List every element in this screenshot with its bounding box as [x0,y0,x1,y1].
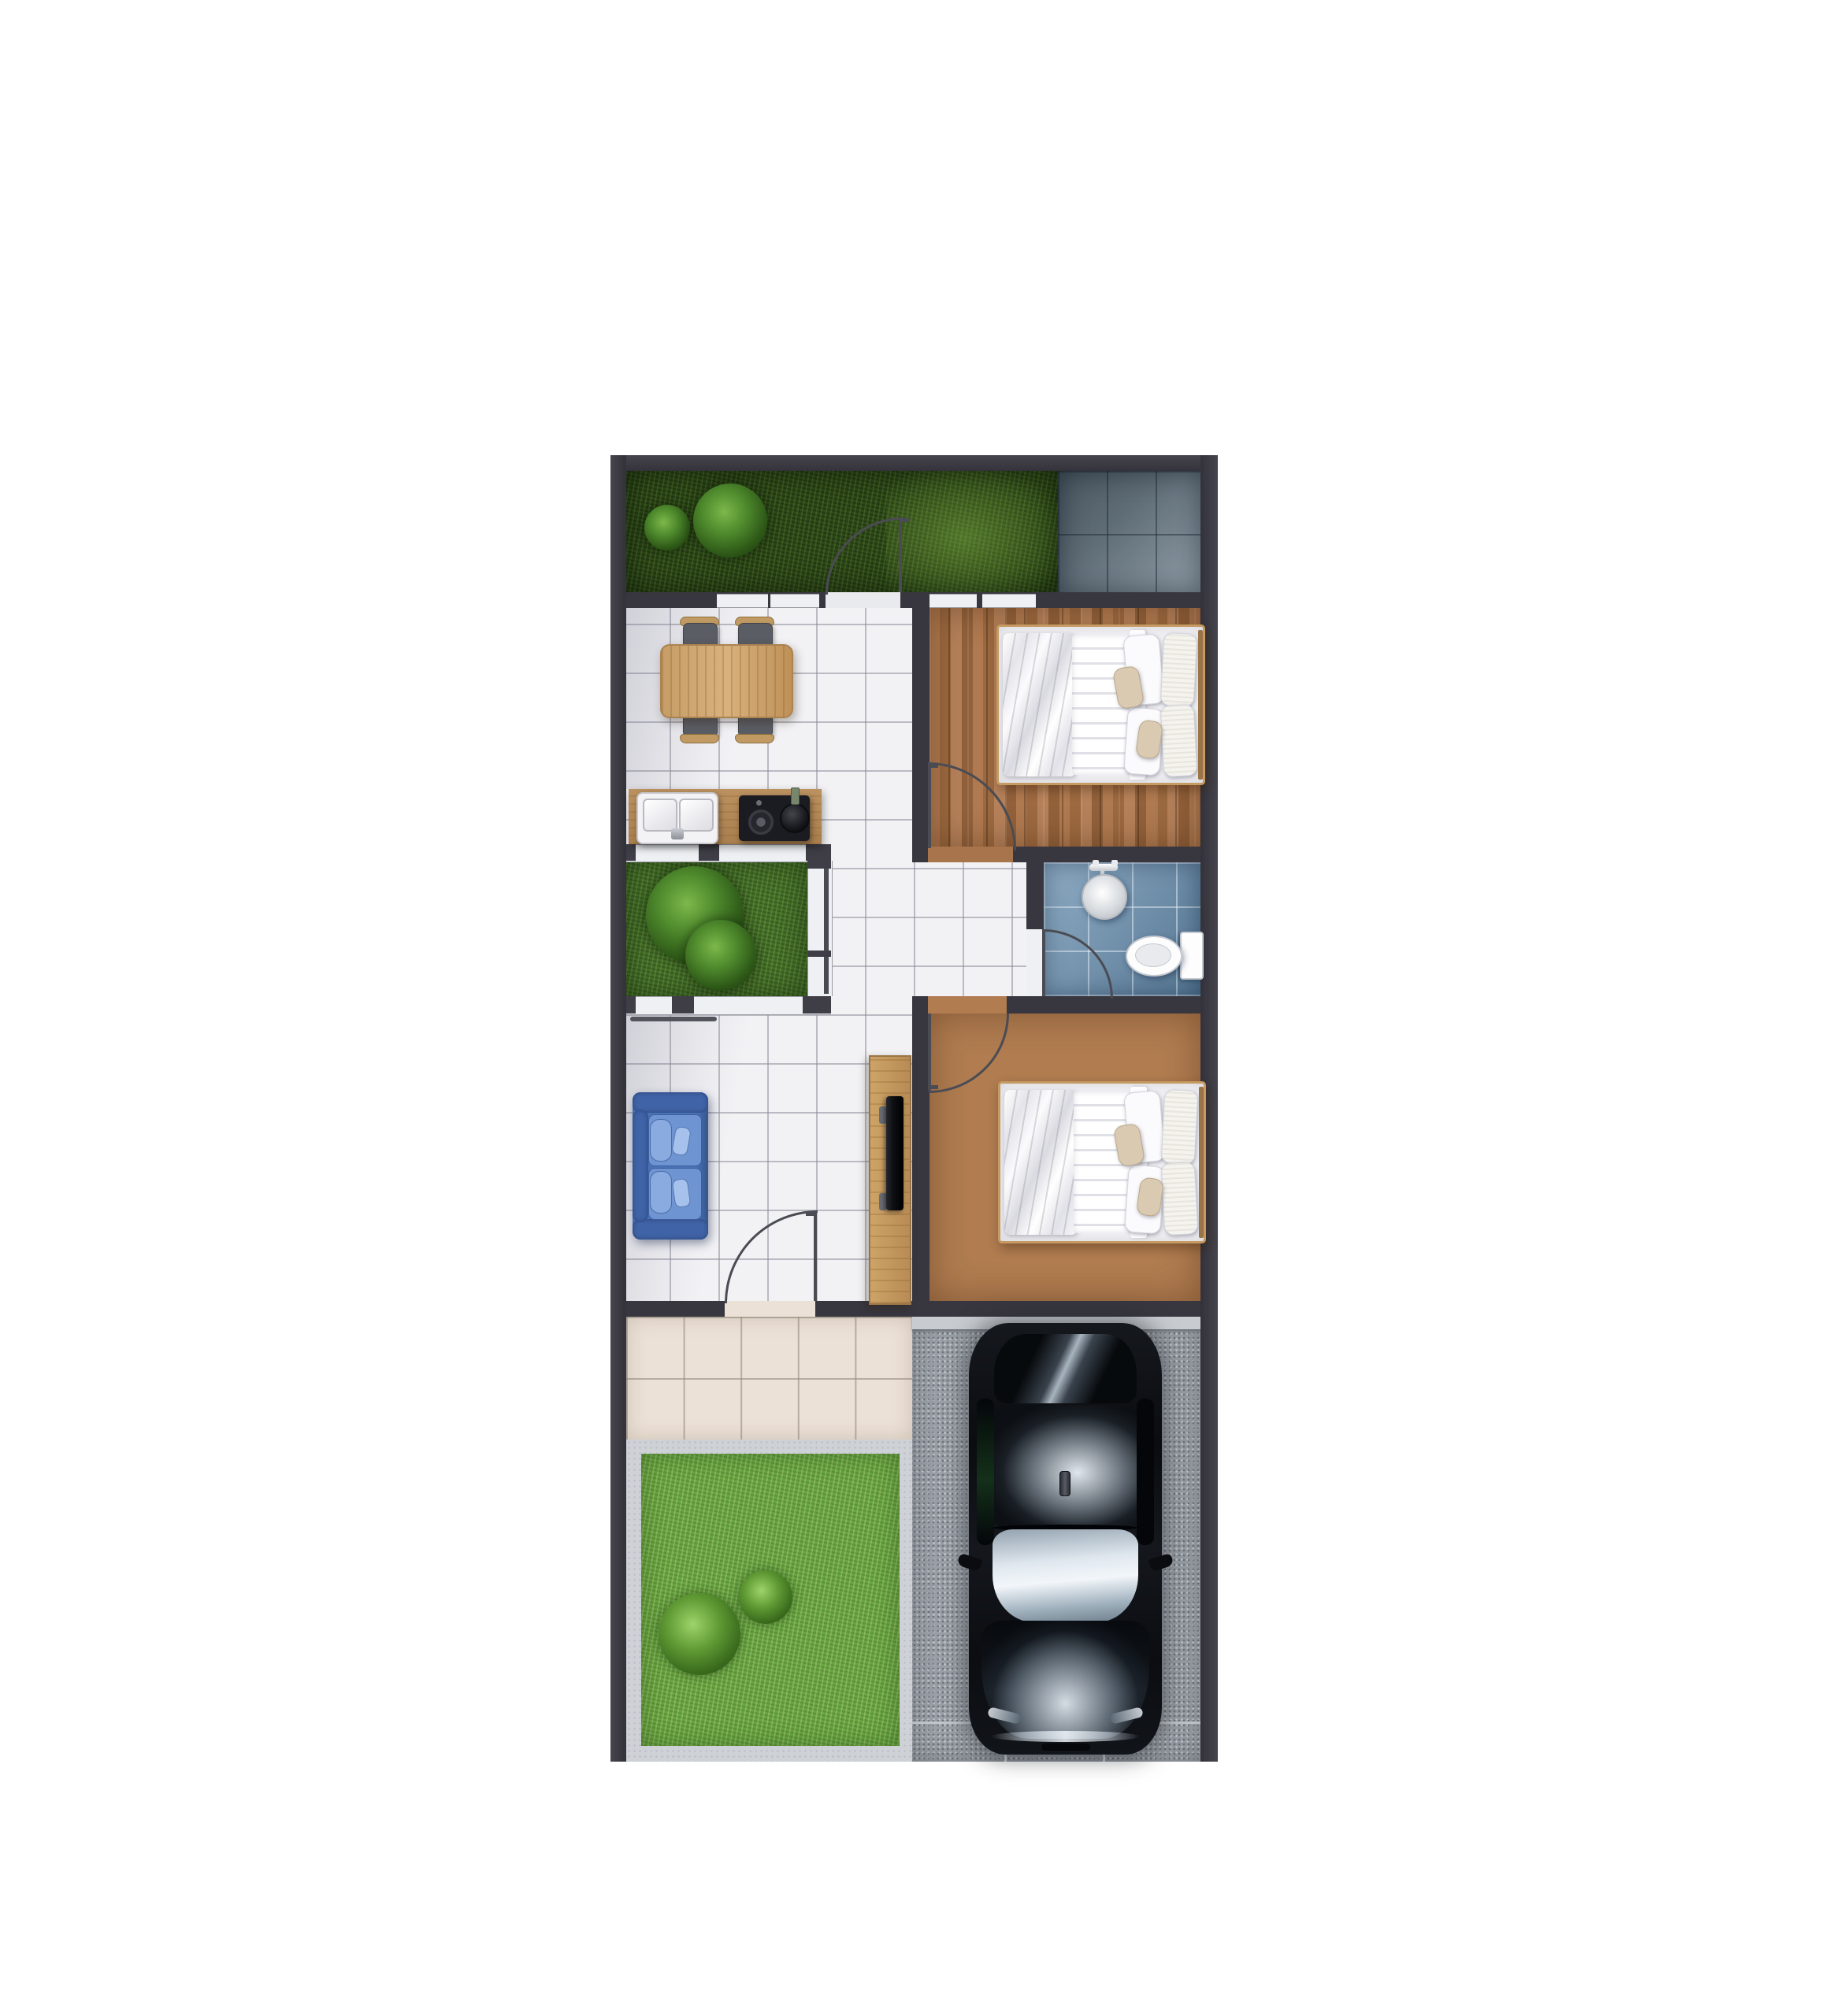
garden-bush-small-icon [644,505,690,550]
window-post [807,861,831,869]
shower-handle-icon [1093,860,1099,865]
wall-top [610,455,1218,471]
window-post [806,844,831,861]
toilet-bowl-inner [1135,943,1171,967]
wall-bedrooms-left-upper [912,592,929,862]
bed-bedroom1 [996,624,1205,785]
bedroom2-door-leaf [928,1014,931,1091]
pot-handle-icon [791,787,800,805]
wall-bedrooms-left-lower [912,1014,929,1301]
bed-blanket [1003,633,1076,776]
tv-screen [886,1096,904,1210]
bedroom1-door-leaf [928,762,931,848]
shower-head-icon [1082,874,1127,920]
bedroom1-window [982,594,1036,608]
car-front-bumper-highlight [991,1731,1140,1742]
front-door-gap [725,1301,815,1317]
wall-bottom-left [626,1301,725,1317]
garden-door-handle [902,518,910,522]
hallway-floor [831,862,1026,996]
wall-bedroom2-top-stub [912,996,928,1014]
garden-door-leaf [899,517,902,592]
window-post [807,951,831,957]
car-side-glass-left [977,1399,994,1545]
bed-pillow-knit [1161,1089,1199,1165]
window-frame-bar [824,866,829,951]
car-antenna-fin-icon [1059,1471,1070,1496]
shower-handle-icon [1111,860,1118,865]
front-yard-bush-large-icon [659,1593,740,1675]
bed-pillow-knit [1161,1162,1199,1236]
dining-chair-rail [680,734,719,743]
toilet-bowl [1126,936,1182,976]
dining-window [770,594,819,608]
courtyard-bush-small-icon [685,920,756,991]
wall-bedroom1-bottom [1013,847,1200,862]
corridor-floor [831,996,912,1014]
courtyard-window-right [807,861,833,996]
dining-window [717,594,768,608]
wall-bedroom2-top [1007,996,1200,1014]
garden-bush-large-icon [693,484,767,558]
wall-left [610,455,626,1762]
bed-pillow-knit [1160,704,1198,777]
back-garden-light-patch [886,471,1058,592]
bedroom2-door-handle [931,1085,938,1089]
bedroom1-window [923,594,977,608]
stove-knob-icon [756,800,762,806]
front-yard-bush-small-icon [739,1570,792,1624]
sofa-backrest [633,1110,648,1222]
sofa-back-cushion [650,1171,672,1214]
side-patio [1058,471,1200,592]
bedroom1-door-handle [931,764,938,768]
floor-plan [610,455,1218,1762]
front-door-handle [806,1212,814,1216]
window-frame-bar [824,957,829,994]
bed-headboard [1198,630,1203,780]
car [969,1323,1162,1755]
window-post [626,996,636,1014]
courtyard-window-top [626,844,831,862]
sofa [633,1092,708,1240]
living-window-frame-bar [630,1017,717,1021]
car-side-glass-right [1137,1399,1154,1545]
bed-headboard [1199,1087,1204,1238]
toilet-tank [1180,932,1204,980]
window-post [699,844,719,861]
bed-bedroom2 [998,1081,1206,1243]
sink-faucet-icon [671,828,684,839]
courtyard-window-bottom [626,996,831,1015]
bathroom-door-gap [1026,929,1044,996]
window-post [803,996,831,1014]
stove-burner-icon [748,810,774,835]
car-grille [1041,1744,1090,1751]
sofa-armrest [633,1219,708,1240]
bedroom2-door-gap [928,996,1007,1014]
bed-blanket [1004,1090,1078,1235]
car-roof [989,1405,1141,1528]
car-rear-windshield [994,1334,1137,1403]
sofa-back-cushion [650,1119,672,1162]
bed-pillow-knit [1160,632,1198,707]
kitchen-stove [739,795,810,841]
bathroom-door-leaf [1042,929,1045,996]
garden-door-gap [826,592,900,608]
wall-bathroom-left [1026,862,1044,929]
window-post [626,844,636,861]
stove-pot-icon [780,803,810,833]
sink-basin [643,799,677,832]
front-door-leaf [814,1210,817,1301]
window-post [672,996,694,1014]
car-windshield [993,1529,1138,1622]
sink-basin [679,799,714,832]
page: { "scene": { "kind": "3d-rendered reside… [0,0,1833,2016]
dining-chair-rail [735,734,774,743]
porch-floor [626,1317,912,1440]
dining-table [660,644,793,718]
kitchen-sink [636,792,718,844]
wall-bedroom1-bottom-stub [912,847,928,862]
